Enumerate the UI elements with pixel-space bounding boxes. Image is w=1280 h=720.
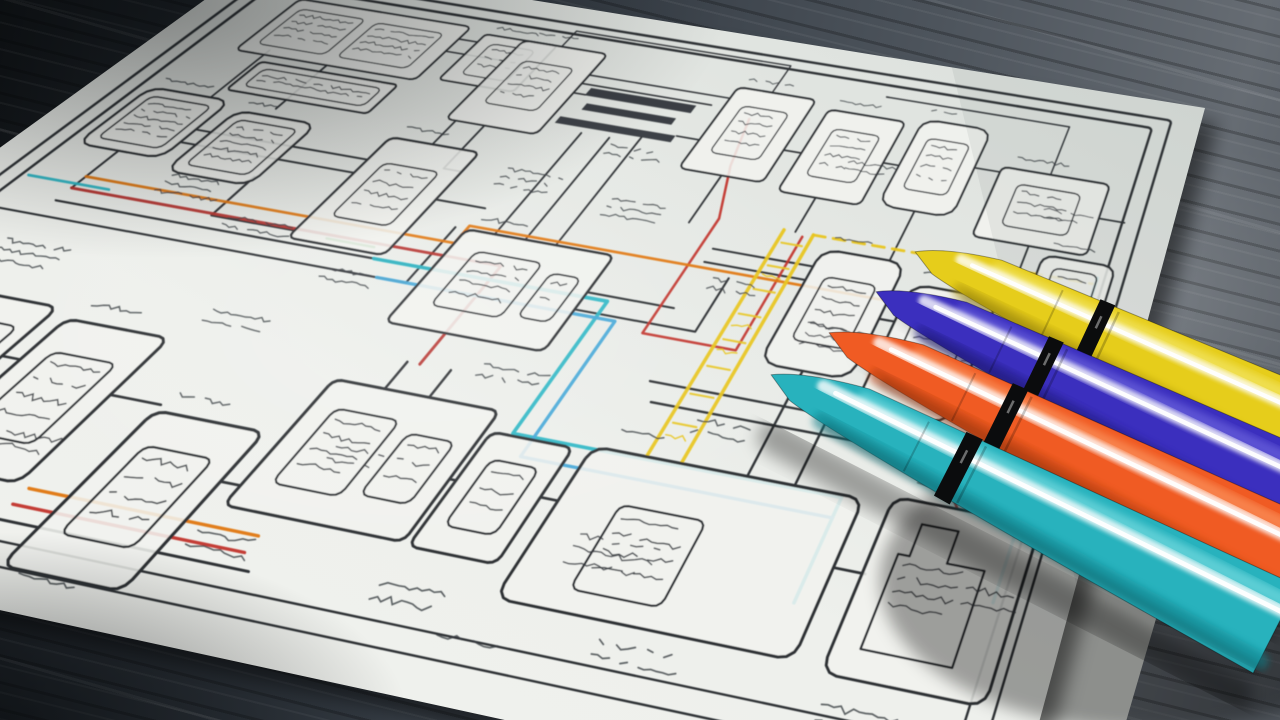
- photo-scene: Hand-drawn electrical wiring diagram on …: [0, 0, 1280, 720]
- scene-render: [0, 0, 1280, 720]
